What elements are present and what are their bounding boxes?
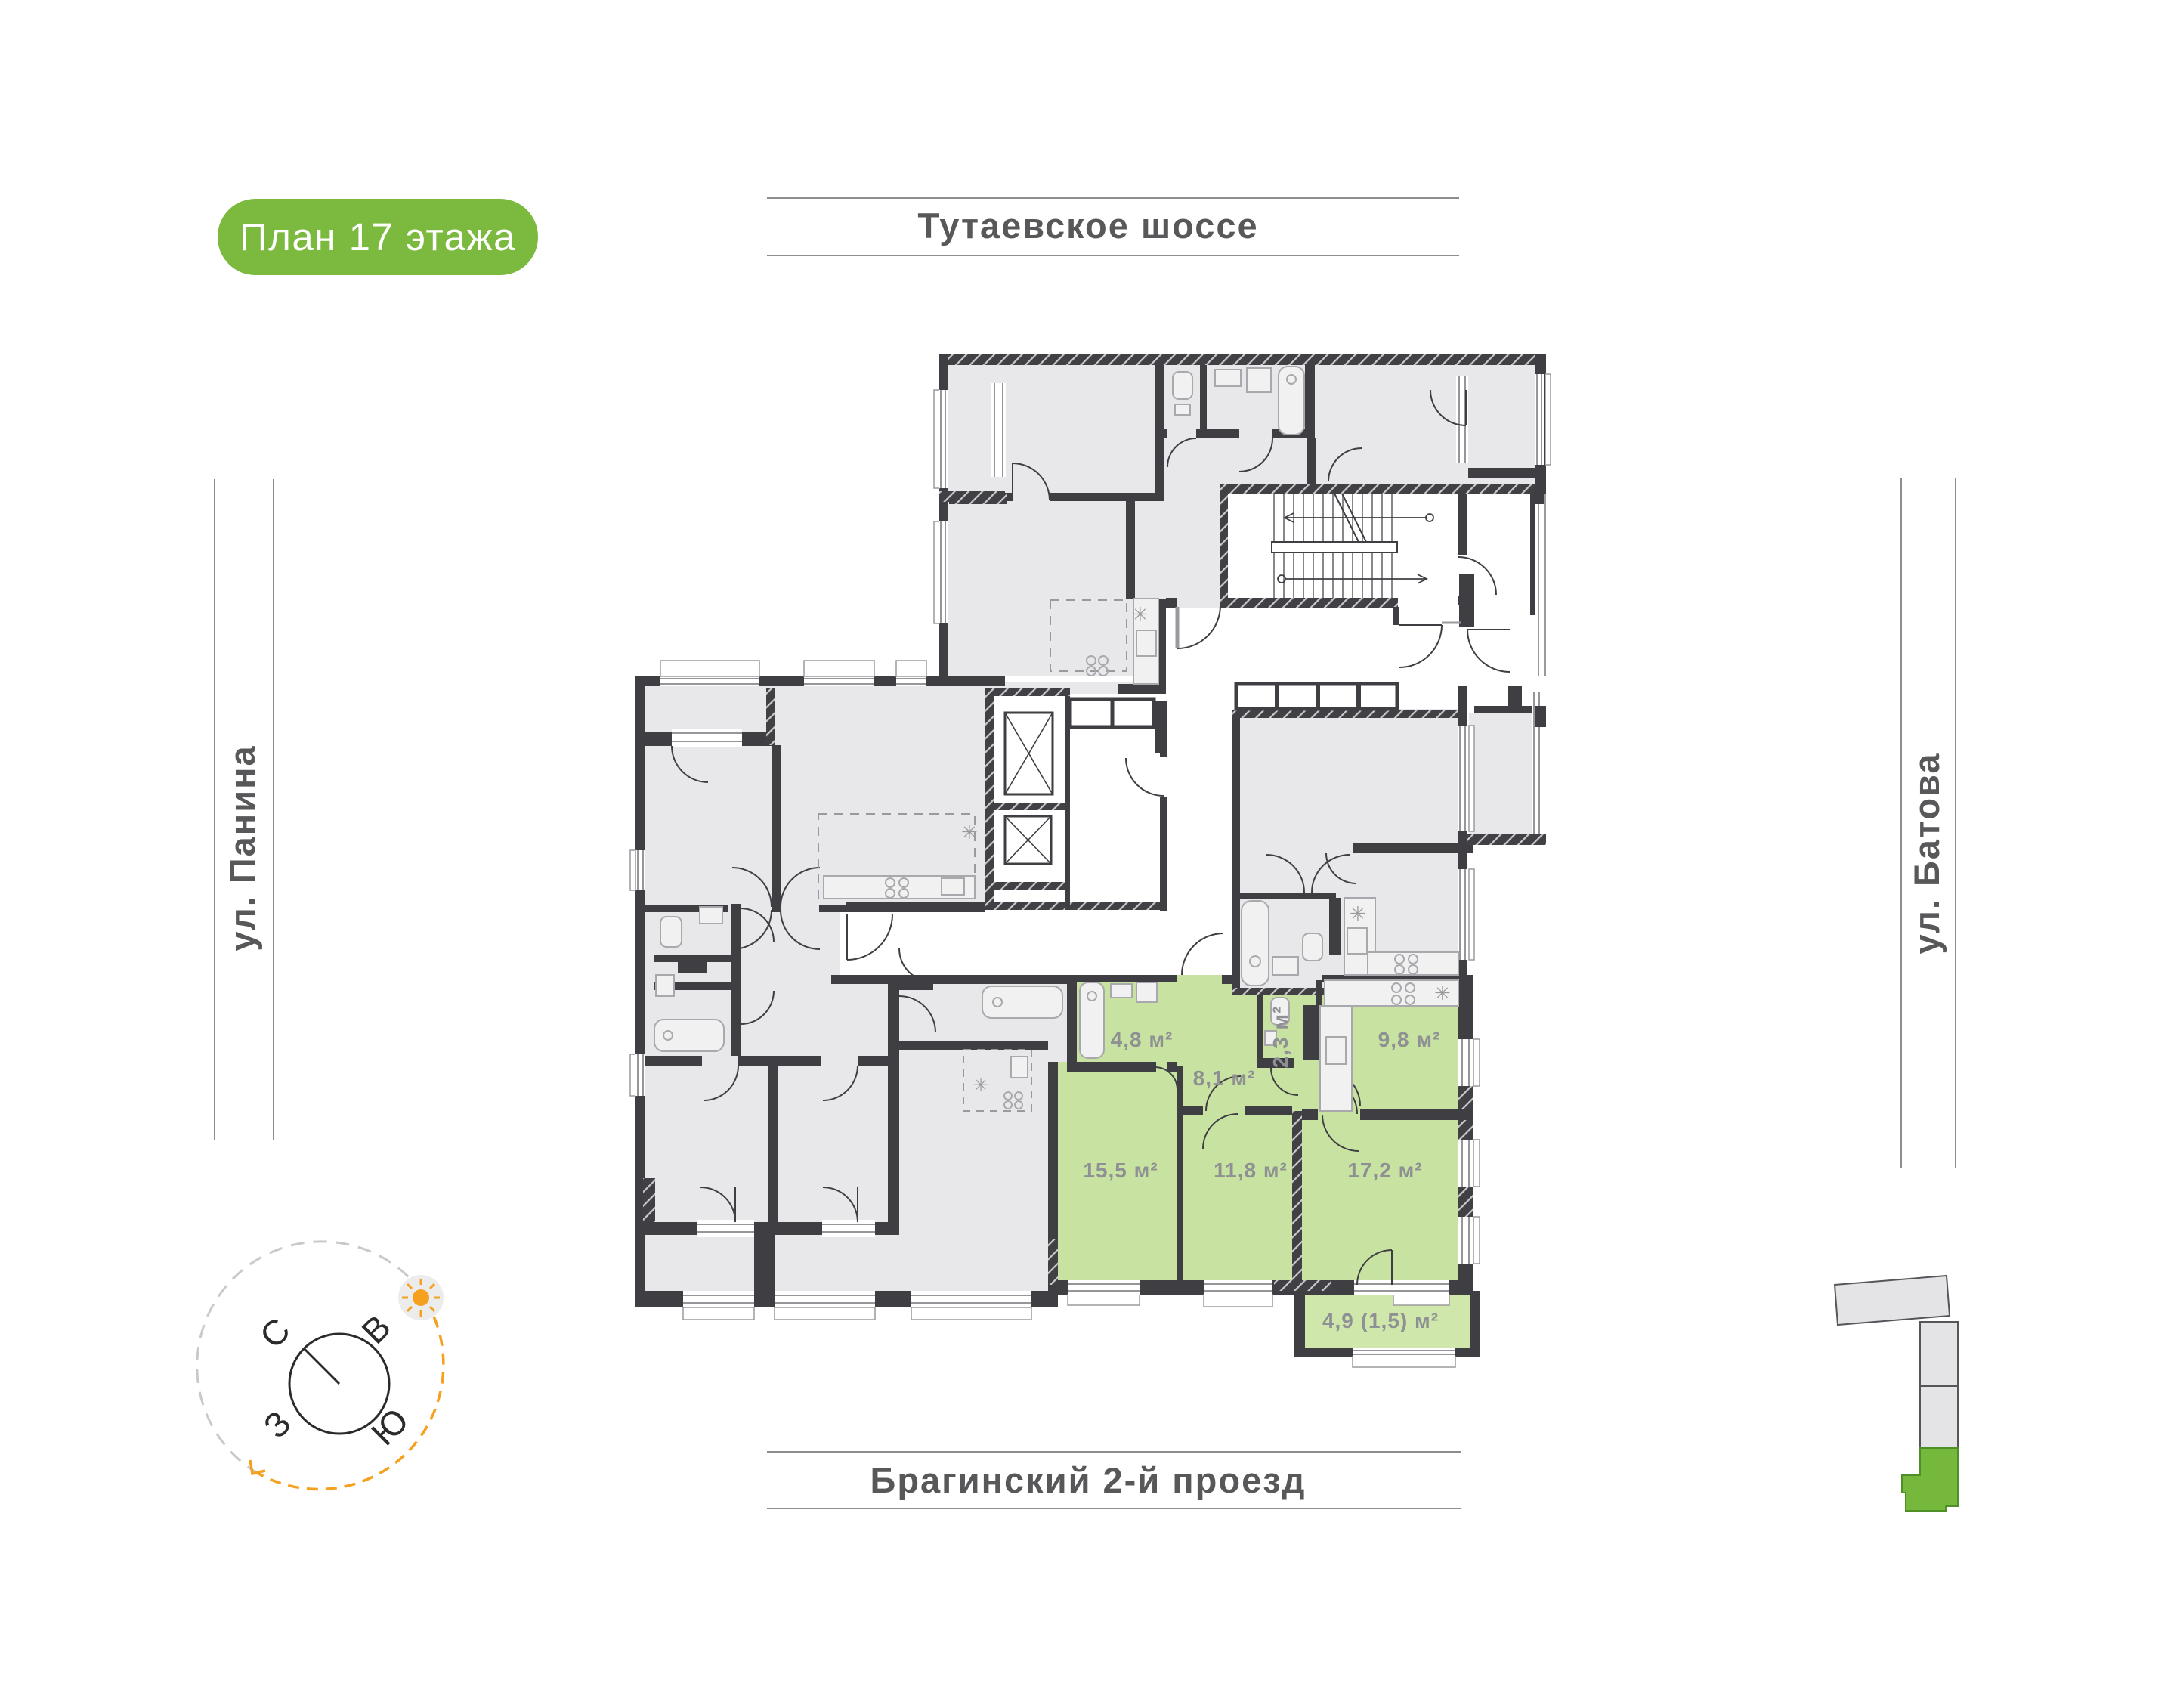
svg-text:2,3 м²: 2,3 м²: [1269, 1006, 1292, 1069]
svg-text:✳: ✳: [973, 1075, 988, 1096]
svg-text:ул. Панина: ул. Панина: [222, 744, 262, 951]
svg-text:✳: ✳: [961, 821, 978, 843]
svg-text:Брагинский 2-й проезд: Брагинский 2-й проезд: [870, 1460, 1307, 1500]
svg-text:4,9 (1,5) м²: 4,9 (1,5) м²: [1322, 1309, 1439, 1332]
svg-text:✳: ✳: [1434, 982, 1451, 1004]
svg-text:9,8 м²: 9,8 м²: [1378, 1028, 1441, 1051]
svg-text:4,8 м²: 4,8 м²: [1111, 1028, 1174, 1051]
svg-text:11,8 м²: 11,8 м²: [1214, 1159, 1288, 1182]
svg-text:План 17 этажа: План 17 этажа: [240, 215, 516, 258]
svg-text:ул. Батова: ул. Батова: [1906, 753, 1947, 955]
svg-text:✳: ✳: [1350, 902, 1366, 925]
svg-text:✳: ✳: [1132, 603, 1149, 626]
svg-text:17,2 м²: 17,2 м²: [1347, 1159, 1422, 1182]
svg-text:Тутаевское шоссе: Тутаевское шоссе: [917, 206, 1258, 246]
svg-text:8,1 м²: 8,1 м²: [1193, 1066, 1256, 1090]
svg-text:15,5 м²: 15,5 м²: [1083, 1159, 1158, 1182]
